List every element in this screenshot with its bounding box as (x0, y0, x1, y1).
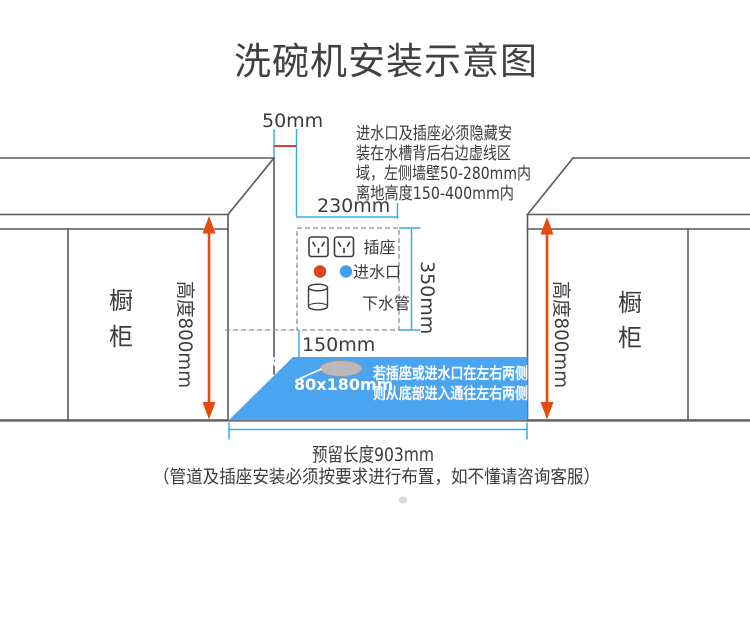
height-arrow-left: 高度800mm (174, 216, 216, 420)
dim-150mm-label: 150mm (302, 334, 375, 356)
dim-903mm: 预留长度903mm (229, 423, 527, 467)
dishwasher-install-diagram: 洗碗机安装示意图 进水口及插座必须隐藏安 装在水槽背后右边虚线区 域，左侧墙壁5… (0, 0, 750, 641)
dim-230mm-label: 230mm (317, 195, 390, 217)
dim-350mm: 350mm (399, 228, 438, 334)
socket-outline (335, 237, 354, 257)
water-inlet-label: 进水口 (353, 263, 401, 282)
left-cabinet-label-top: 橱 (109, 287, 133, 315)
install-note-line-2: 装在水槽背后右边虚线区 (356, 144, 511, 164)
floor-note-line-1: 若插座或进水口在左右两侧 (372, 364, 528, 383)
right-cabinet-label-top: 橱 (618, 289, 642, 317)
dim-150mm: 150mm (299, 330, 375, 358)
socket-icon (309, 237, 328, 257)
height-arrow-left-head-top (203, 216, 216, 234)
left-cabinet-top-diagonal (228, 158, 274, 215)
left-cabinet-label-bottom: 柜 (109, 323, 133, 351)
left-cabinet: 橱 柜 (0, 158, 274, 420)
page-title: 洗碗机安装示意图 (234, 40, 538, 83)
reserved-length-label: 预留长度903mm (312, 444, 434, 466)
hidden-install-zone: 插座 进水口 下水管 (225, 228, 410, 330)
height-arrow-left-head-bottom (203, 402, 216, 420)
left-cabinet-height-label: 高度800mm (174, 281, 196, 388)
right-cabinet-height-label: 高度800mm (550, 281, 572, 388)
socket-label: 插座 (364, 238, 396, 257)
right-cabinet-label-bottom: 柜 (618, 324, 642, 352)
floor-note-line-2: 则从底部进入通往左右两侧 (373, 384, 528, 403)
diagram-svg: 洗碗机安装示意图 进水口及插座必须隐藏安 装在水槽背后右边虚线区 域，左侧墙壁5… (0, 0, 750, 641)
install-note-line-3: 域，左侧墙壁50-280mm内 (356, 164, 531, 184)
install-note-line-1: 进水口及插座必须隐藏安 (356, 124, 512, 144)
socket-outline (309, 237, 328, 257)
water-inlet-red-dot-icon (314, 265, 326, 277)
drain-pipe-top-rim (309, 284, 328, 291)
dim-350mm-label: 350mm (416, 261, 438, 334)
dim-50mm: 50mm (262, 110, 323, 217)
height-arrow-right: 高度800mm (541, 217, 573, 420)
right-cabinet-top-diagonal (528, 158, 574, 215)
footer-note: （管道及插座安装必须按要求进行布置，如不懂请咨询客服） (153, 467, 600, 488)
drain-pipe-icon (309, 284, 328, 310)
install-note: 进水口及插座必须隐藏安 装在水槽背后右边虚线区 域，左侧墙壁50-280mm内 … (356, 124, 531, 204)
dim-50mm-label: 50mm (262, 110, 323, 132)
water-inlet-blue-dot-icon (340, 265, 352, 277)
dim-230mm: 230mm (297, 195, 398, 219)
height-arrow-right-head-top (541, 217, 554, 235)
drain-pipe-label: 下水管 (362, 294, 410, 313)
socket-icon (335, 237, 354, 257)
watermark-dot (399, 497, 408, 504)
height-arrow-right-head-bottom (541, 402, 554, 420)
niche-floor: 600mm 80x180mm 若插座或进水口在左右两侧 则从底部进入通往左右两侧 (229, 346, 528, 420)
